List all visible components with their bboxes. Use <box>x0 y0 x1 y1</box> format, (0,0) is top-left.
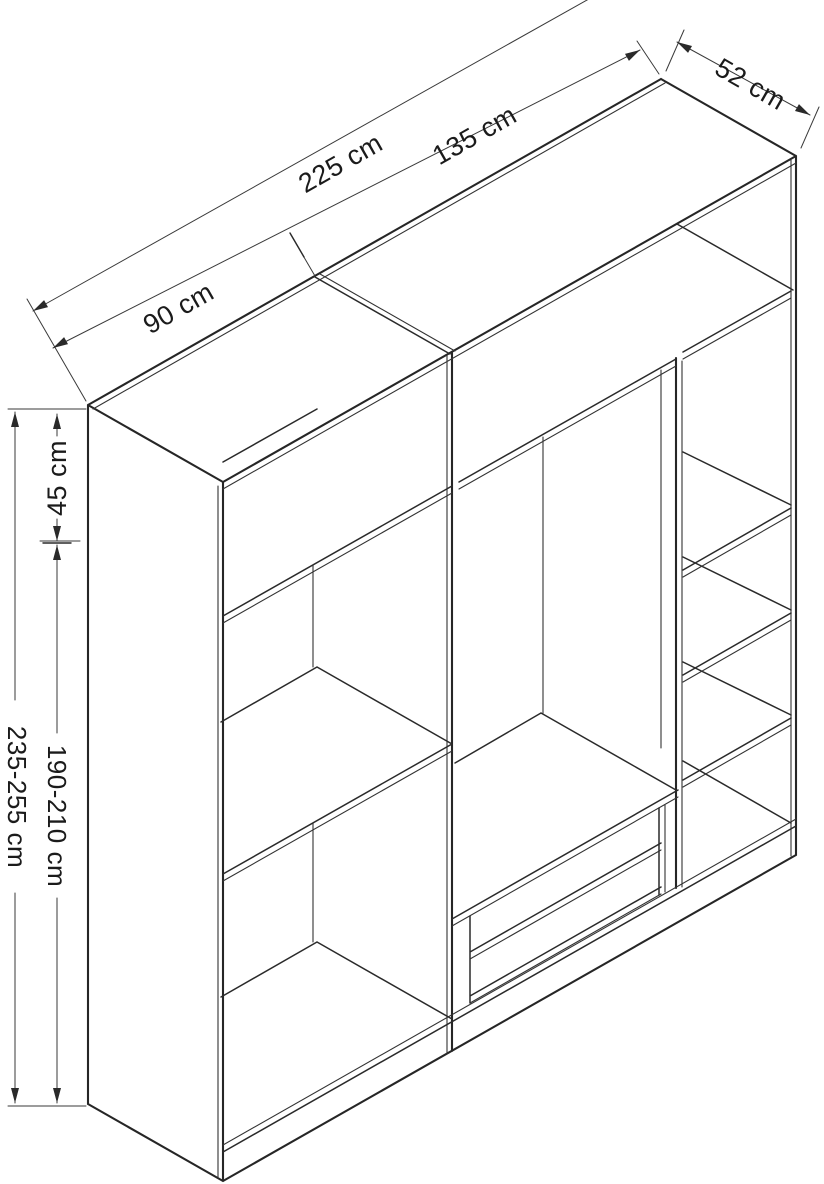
panel-thickness-lines <box>93 83 796 1178</box>
dim-label-depth: 52 cm <box>710 52 791 116</box>
dim-label-left-width: 90 cm <box>138 276 219 340</box>
carcass-outline <box>88 79 796 1181</box>
right-tower-shelves <box>683 452 791 823</box>
dimension-ticks <box>43 233 304 543</box>
left-section-shelves <box>221 667 452 1019</box>
drawer-fronts <box>470 808 661 1003</box>
dim-label-body-height: 190-210 cm <box>42 745 72 887</box>
diagram-page: 90 cm 225 cm 135 cm 52 cm 45 cm 190-210 … <box>0 0 824 1184</box>
top-partition-mark <box>315 277 450 354</box>
wardrobe-dimension-diagram: 90 cm 225 cm 135 cm 52 cm 45 cm 190-210 … <box>0 0 824 1184</box>
dimension-labels: 90 cm 225 cm 135 cm 52 cm 45 cm 190-210 … <box>2 52 791 887</box>
dim-label-top-section-height: 45 cm <box>42 440 72 516</box>
interior-corner-lines <box>313 370 661 942</box>
witness-lines <box>8 30 819 1106</box>
dim-label-total-height: 235-255 cm <box>2 726 32 868</box>
drawer-unit <box>452 713 678 1003</box>
dim-label-right-width: 135 cm <box>427 100 521 171</box>
plinth-line <box>223 826 796 1152</box>
dimension-lines <box>8 0 819 1106</box>
